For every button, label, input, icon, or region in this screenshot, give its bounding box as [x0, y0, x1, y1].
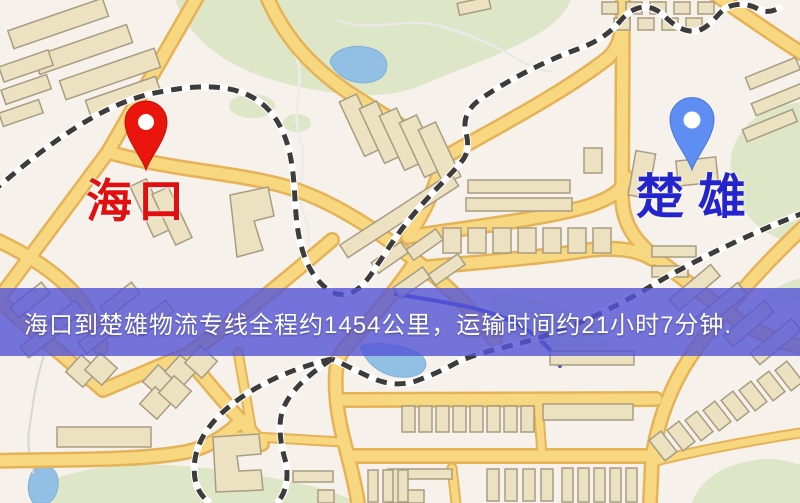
destination-city-label: 楚雄	[636, 174, 760, 222]
origin-city-label: 海口	[86, 178, 190, 224]
map-canvas[interactable]	[0, 0, 800, 503]
route-info-banner: 海口到楚雄物流专线全程约1454公里，运输时间约21小时7分钟.	[0, 288, 800, 356]
map-viewport: 海口 楚雄 海口到楚雄物流专线全程约1454公里，运输时间约21小时7分钟.	[0, 0, 800, 503]
route-info-text: 海口到楚雄物流专线全程约1454公里，运输时间约21小时7分钟.	[0, 305, 732, 340]
